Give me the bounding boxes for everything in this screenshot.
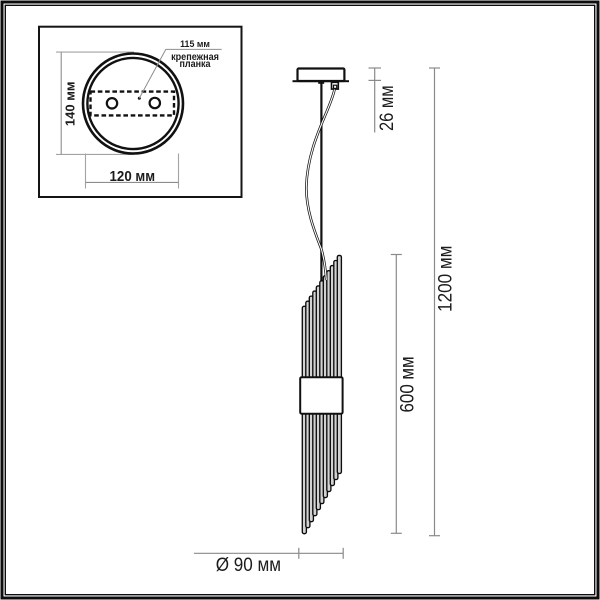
svg-text:Ø 90 мм: Ø 90 мм (216, 554, 281, 575)
svg-text:600 мм: 600 мм (396, 356, 417, 412)
svg-text:140 мм: 140 мм (62, 82, 77, 127)
svg-text:планка: планка (179, 58, 211, 70)
svg-text:120 мм: 120 мм (110, 169, 156, 185)
svg-text:1200 мм: 1200 мм (434, 246, 455, 312)
svg-text:26 мм: 26 мм (376, 85, 397, 131)
svg-text:115 мм: 115 мм (180, 39, 210, 49)
